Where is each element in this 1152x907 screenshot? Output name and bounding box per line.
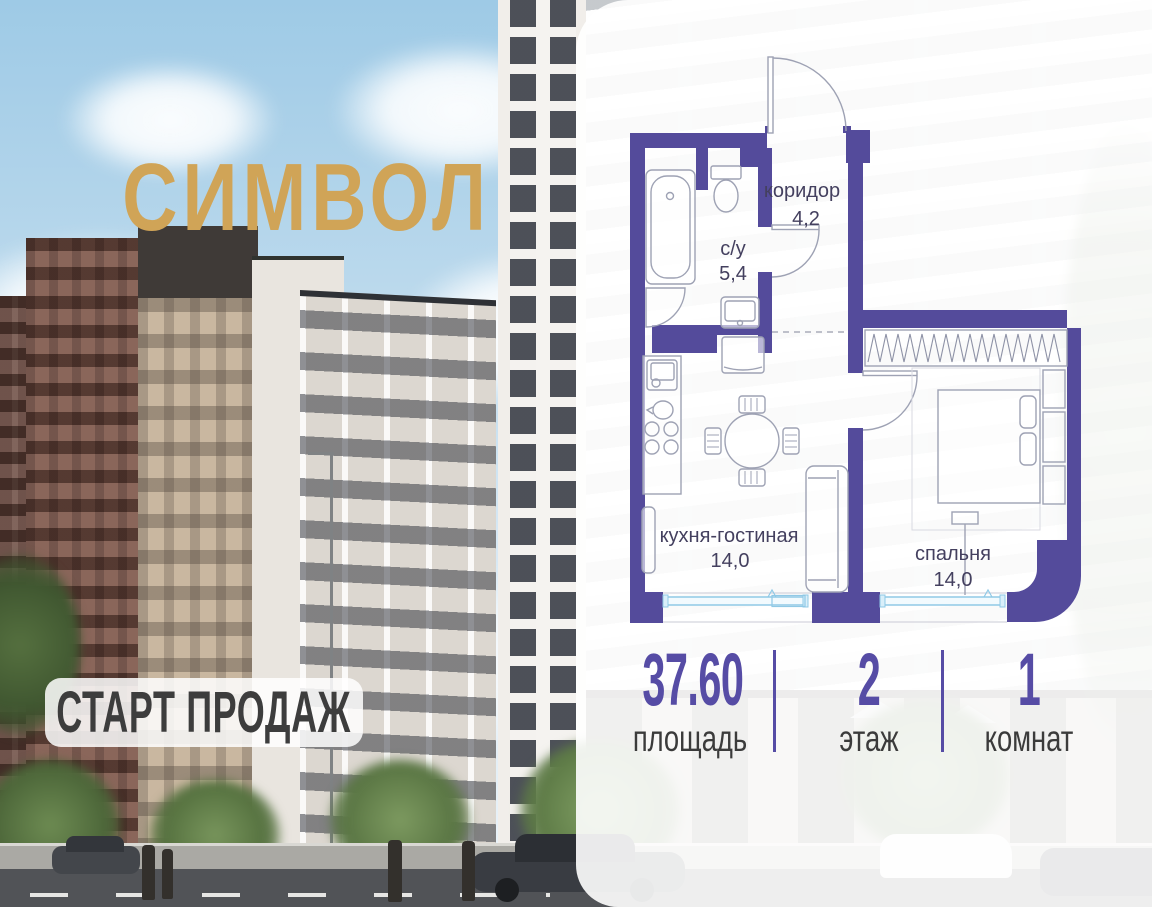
walls bbox=[630, 126, 1081, 623]
floor-plan: коридор 4,2 с/у 5,4 кухня-гостиная 14,0 … bbox=[576, 0, 1152, 650]
bed bbox=[938, 390, 1040, 503]
radiator bbox=[642, 507, 655, 573]
info-panel: коридор 4,2 с/у 5,4 кухня-гостиная 14,0 … bbox=[576, 0, 1152, 907]
stat-floor-label: этаж bbox=[806, 720, 932, 758]
stat-rooms: 1 комнат bbox=[944, 642, 1114, 758]
stat-area: 37.60 площадь bbox=[605, 642, 775, 758]
window-bedroom bbox=[880, 590, 1007, 622]
window-kitchen bbox=[663, 590, 812, 622]
pedestrian bbox=[388, 840, 402, 902]
sofa bbox=[806, 466, 848, 592]
room-label-bathroom: с/у bbox=[720, 238, 746, 260]
stat-floor-value: 2 bbox=[821, 642, 916, 718]
room-area-bedroom: 14,0 bbox=[934, 569, 973, 591]
room-label-kitchen-living: кухня-гостиная bbox=[660, 525, 799, 547]
dining-table bbox=[705, 396, 799, 486]
room-area-bathroom: 5,4 bbox=[719, 263, 747, 285]
stats-divider bbox=[773, 650, 776, 752]
corner-basin bbox=[646, 288, 685, 327]
pedestrian bbox=[162, 849, 173, 899]
bathtub bbox=[646, 170, 695, 284]
room-label-bedroom: спальня bbox=[915, 543, 991, 565]
car-dark-suv-cabin bbox=[66, 836, 124, 852]
stat-floor: 2 этаж bbox=[784, 642, 954, 758]
kitchen-counter bbox=[643, 356, 681, 494]
stat-rooms-label: комнат bbox=[966, 720, 1092, 758]
apartment-stats: 37.60 площадь 2 этаж 1 комнат bbox=[576, 642, 1152, 767]
washbasin bbox=[721, 297, 759, 328]
street-light-arm bbox=[308, 452, 334, 455]
brand-logo: СИМВОЛ bbox=[76, 148, 536, 248]
room-area-kitchen-living: 14,0 bbox=[711, 550, 750, 572]
bathroom-door bbox=[772, 225, 819, 277]
stat-rooms-value: 1 bbox=[981, 642, 1076, 718]
pedestrian bbox=[462, 841, 475, 901]
entrance-door bbox=[768, 57, 846, 133]
tv-stand bbox=[722, 337, 764, 373]
stat-area-label: площадь bbox=[627, 720, 753, 758]
stat-area-value: 37.60 bbox=[642, 642, 737, 718]
sales-start-badge: СТАРТ ПРОДАЖ bbox=[45, 678, 363, 747]
car-wheel bbox=[495, 878, 519, 902]
brand-logo-text: СИМВОЛ bbox=[122, 143, 491, 253]
pedestrian bbox=[142, 845, 155, 900]
bedside-cabinets bbox=[1043, 370, 1065, 504]
bedroom-door bbox=[863, 371, 917, 430]
street-light-pole bbox=[330, 452, 333, 847]
room-area-corridor: 4,2 bbox=[792, 208, 820, 230]
sales-start-badge-label: СТАРТ ПРОДАЖ bbox=[57, 679, 352, 746]
wardrobe bbox=[865, 330, 1067, 366]
listing-card: СИМВОЛ СТАРТ ПРОДАЖ bbox=[0, 0, 1152, 907]
room-label-corridor: коридор bbox=[764, 180, 840, 202]
toilet bbox=[711, 166, 741, 212]
